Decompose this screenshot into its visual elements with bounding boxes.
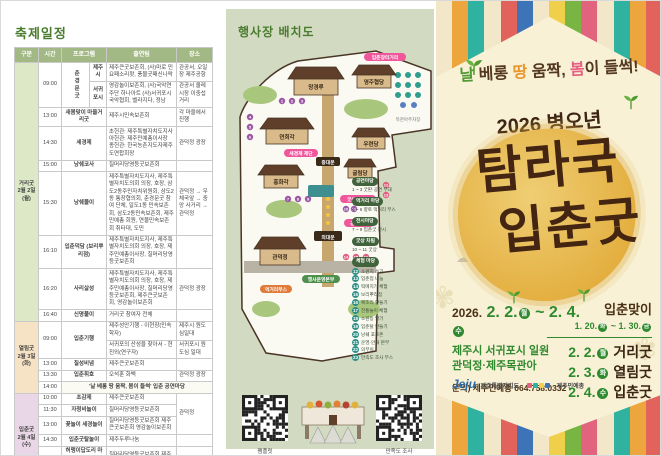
label-oedaemun: 외대문 (321, 234, 335, 241)
table-row: 14:30입춘굿탈놀이제주두루나눔 (15, 435, 213, 446)
panel-festival-schedule: 축제일정 구분 시간 프로그램 출연팀 장소 거리굿2월 2일(월)09:00춘… (1, 1, 223, 456)
group-cell: 입춘굿2월 4일(수) (15, 393, 39, 456)
greeting-events: 2. 2.월 거리굿2. 3.화 열림굿2. 4.수 입춘굿 (547, 342, 652, 402)
day-circle-wed: 수 (453, 326, 464, 337)
label-yeongjuhyeopdang: 영주협당 (364, 78, 384, 86)
label-uryeondang: 우련당 (363, 140, 378, 148)
group-cell: 열림굿2월 3일(화) (15, 321, 39, 393)
table-row: 15:00허맹이답도리 마누라배송 막푸다시 도진칠머리당영등굿보존회 제주큰굿… (15, 446, 213, 456)
cover-title-line1: 탐라국 (474, 135, 622, 197)
col-header-program: 프로그램 (62, 48, 107, 63)
cloud-decoration: ☁ (456, 251, 466, 265)
panel-venue-map: 행사장 배치도 (226, 9, 434, 449)
table-row: 15:30낭쉐몰이제주특별자치도지사, 제주특별자치도의회 의장, 호장, 삼도… (15, 172, 213, 235)
legend-section: 굿상 차림10 ~ 11 굿상 (352, 237, 430, 254)
altar-illustration (298, 393, 368, 445)
event-date-from: 2. 2. (486, 304, 517, 321)
label-gwandeokjeong: 관덕정 (272, 253, 287, 261)
sprout-icon (506, 289, 522, 305)
label-yeonhuigak: 연희각 (279, 133, 294, 141)
greeting-event-line: 2. 3.화 열림굿 (547, 362, 652, 382)
label-mangyeongru: 망경루 (308, 83, 323, 91)
greeting-range: 1. 20.화 ~ 1. 30.금 (547, 321, 652, 332)
brochure-page: 축제일정 구분 시간 프로그램 출연팀 장소 거리굿2월 2일(월)09:00춘… (0, 0, 661, 456)
col-header-place: 장소 (177, 48, 213, 63)
schedule-table-wrap: 구분 시간 프로그램 출연팀 장소 거리굿2월 2일(월)09:00춘경문굿제주… (14, 47, 212, 456)
table-row: 14:30세경제초헌관: 제주특별자치도지사 아헌관: 제주민예총이사장 종헌관… (15, 127, 213, 161)
schedule-header-row: 구분 시간 프로그램 출연팀 장소 (15, 48, 213, 63)
legend-section: 전시마당7 ~ 9 입춘굿 전시 (352, 217, 430, 234)
table-row: 16:20사리살성제주특별자치도지사, 제주특별자치도의회 의장, 호장, 제주… (15, 269, 213, 310)
legend-section: 먹거리 마당4 ~ 6 향토 먹거리 부스 (352, 197, 430, 214)
table-row: 15:00낭쉐코사칠머리당영등굿보존회 (15, 160, 213, 171)
table-row: 13:00새봄맞이 마을거리굿제주시민속보존회각 마을에서 진행 (15, 108, 213, 127)
qr-code-survey[interactable] (376, 395, 422, 441)
col-header-gubun: 구분 (15, 48, 39, 63)
greeting-divider (547, 337, 652, 338)
day-circle-mon: 월 (519, 308, 530, 319)
qr-code-pamphlet[interactable] (242, 395, 288, 441)
event-year: 2026. (452, 306, 482, 320)
map-legend: 공연마당1 ~ 3 굿판·공연 무대먹거리 마당4 ~ 6 향토 먹거리 부스전… (352, 177, 430, 365)
label-gyullimdang: 귤림당 (352, 169, 367, 177)
greeting-event-line: 2. 4.수 입춘굿 (547, 382, 652, 402)
qr-left[interactable]: 팸플릿 (242, 395, 288, 455)
schedule-table: 구분 시간 프로그램 출연팀 장소 거리굿2월 2일(월)09:00춘경문굿제주… (14, 47, 213, 456)
map-pond (308, 185, 334, 197)
tag-hq: 행사운영본부 (308, 276, 335, 283)
col-header-time: 시간 (39, 48, 62, 63)
greeting-event-line: 2. 2.월 거리굿 (547, 342, 652, 362)
group-cell: 거리굿2월 2일(월) (15, 63, 39, 322)
map-road-vertical (322, 69, 334, 287)
table-row: 13:30입춘휘호오석훈 화백관덕정 광장 (15, 370, 213, 381)
panel-cover: ☁☁ ☁ ✾ ✾ 날 베롱 땅 움짝, 봄이 들썩! 2026 병오년 탐라국 … (436, 1, 661, 456)
table-row: 거리굿2월 2일(월)09:00춘경문굿제주시제주큰굿보존회, (사)마로 민요… (15, 63, 213, 82)
qr-right[interactable]: 만족도 조사 (376, 395, 422, 455)
cover-title-line2: 입춘굿 (496, 195, 644, 257)
legend-section: 공연마당1 ~ 3 굿판·공연 무대 (352, 177, 430, 194)
table-row: 16:40신명풀이거리굿 참여자 전체 (15, 310, 213, 321)
svg-text:14: 14 (344, 255, 349, 260)
ipchun-greeting-block: 입춘맞이 1. 20.화 ~ 1. 30.금 2. 2.월 거리굿2. 3.화 … (547, 299, 652, 402)
tag-market-street: 입춘장터거리 (372, 54, 398, 61)
label-honghwagak: 홍화각 (273, 178, 288, 186)
table-row: 14:00'날 베롱 땅 움짝, 봄이 들썩' 입춘 공연마당 (15, 382, 213, 393)
tag-food: 먹거리부스 (265, 286, 288, 293)
schedule-title: 축제일정 (15, 23, 67, 42)
sprout-icon (622, 93, 640, 111)
greeting-title: 입춘맞이 (547, 299, 652, 318)
sprout-icon (464, 57, 484, 77)
tag-segyeongje: 세경제 제단 (289, 150, 313, 157)
day-circle-tue: 화 (598, 323, 607, 332)
qr-left-label: 팸플릿 (242, 447, 288, 455)
qr-row: 팸플릿 만족도 조사 (226, 391, 434, 449)
table-row: 입춘굿2월 4일(수)10:00초감제제주큰굿보존회관덕정 (15, 393, 213, 404)
col-header-team: 출연팀 (107, 48, 177, 63)
svg-text:10: 10 (344, 207, 349, 212)
table-row: 13:00칠성비념제주큰굿보존회 (15, 359, 213, 370)
jeju-logo: Jeju 제주특별자치도 (452, 375, 519, 393)
table-row: 16:10입춘덕담 (보리뿌리점)제주특별자치도지사, 제주특별자치도의회 의장… (15, 235, 213, 269)
table-row: 열림굿2월 3일(화)09:00입춘기행제주성안기행 - 이현장(민속학자)제주… (15, 321, 213, 340)
label-parking: 목관아주차장 (396, 116, 421, 123)
label-jungdaemun: 중대문 (321, 159, 335, 166)
legend-list-section: 체험 마당12소원지 쓰기13입춘첩 나눔14떡메치기 체험15보리뿌리점16복… (352, 257, 430, 362)
day-circle-fri: 금 (642, 323, 651, 332)
qr-right-label: 만족도 조사 (376, 447, 422, 455)
event-date-tilde: ~ (535, 304, 544, 321)
